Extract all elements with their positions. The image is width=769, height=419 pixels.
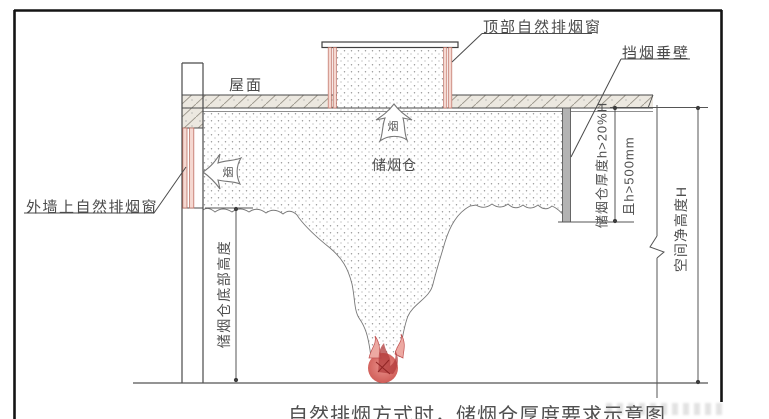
watermark-smudge [606,403,722,415]
wall-window [183,128,194,208]
dim-label-reservoir-bottom-height: 储烟仓底部高度 [214,240,234,349]
dim-label-clear-height: 空间净高度H [671,186,691,272]
smoke-reservoir-label: 储烟仓 [372,155,417,175]
dim-label-reservoir-thickness: 储烟仓厚度h>20%H [592,102,611,228]
dim-label-thickness-min: 且h>500mm [619,136,638,215]
svg-text:烟: 烟 [223,165,234,179]
wall-window-label: 外墙上自然排烟窗 [26,196,158,217]
roof-label: 屋面 [229,74,263,95]
diagram: 烟 烟 屋面 顶部自然排烟窗 挡烟垂壁 外墙上自然排烟窗 储烟仓 储烟仓底部高度… [0,0,769,419]
smoke-barrier-wall [563,108,571,222]
top-window-label: 顶部自然排烟窗 [483,16,602,37]
smoke-barrier-label: 挡烟垂壁 [622,42,690,63]
svg-text:烟: 烟 [388,119,399,133]
